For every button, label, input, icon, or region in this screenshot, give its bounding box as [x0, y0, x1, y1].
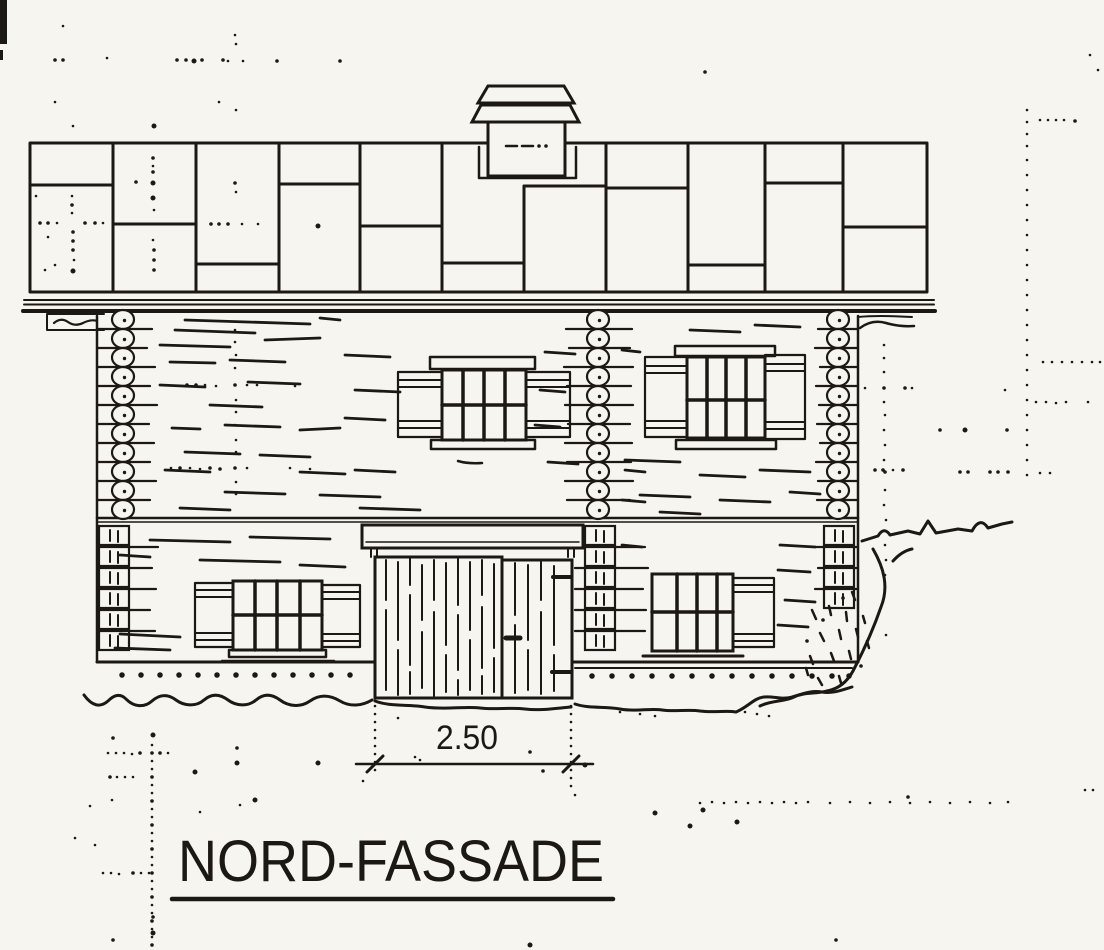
chimney [472, 86, 579, 178]
entrance-doors [362, 525, 583, 698]
drawing-title: NORD-FASSADE [172, 829, 613, 899]
title-text: NORD-FASSADE [178, 829, 604, 894]
terrain-right [760, 521, 1012, 706]
door-canopy [362, 525, 583, 557]
scanned-elevation-sheet: 2.50 NORD-FASSADE [0, 0, 1104, 950]
eaves-fascia [23, 300, 935, 330]
window-upper-left [398, 357, 570, 463]
scan-edge-artifacts [0, 0, 7, 60]
dimension-label: 2.50 [436, 719, 498, 757]
window-lower-right [641, 574, 774, 662]
window-lower-left [195, 581, 360, 661]
facade-drawing: 2.50 NORD-FASSADE [0, 0, 1104, 950]
dimension-annotation: 2.50 [356, 706, 593, 786]
barn-door [375, 557, 502, 698]
window-upper-right [645, 346, 805, 449]
entry-door [502, 560, 572, 698]
